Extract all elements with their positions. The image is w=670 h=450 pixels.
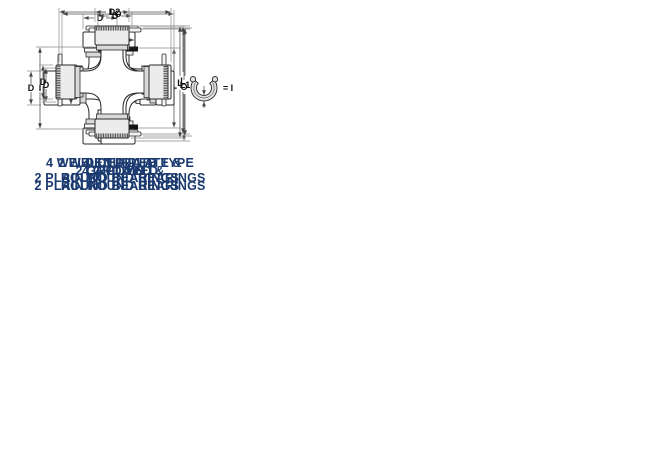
dim-label-d-top: D bbox=[109, 7, 116, 17]
caption-line2: ROUND BEARINGS bbox=[0, 171, 240, 186]
dim-label-l-right: L bbox=[177, 78, 183, 88]
dim-label-d-left: D bbox=[40, 77, 47, 87]
u-joint-4-knurled-drawing: D D L bbox=[0, 0, 240, 152]
bearing-types-chart: D D + = I 4 GROOVED bbox=[0, 0, 670, 450]
caption-4-knurled: 4 KNURLED ROUND BEARINGS bbox=[0, 156, 240, 185]
caption-line1: 4 KNURLED bbox=[0, 156, 240, 171]
diagram-4-knurled-round-bearings: D D L 4 KNURLED ROUND BEARINGS bbox=[0, 0, 240, 185]
knurled-bearing-cap bbox=[95, 26, 129, 50]
cross-body bbox=[76, 46, 148, 118]
